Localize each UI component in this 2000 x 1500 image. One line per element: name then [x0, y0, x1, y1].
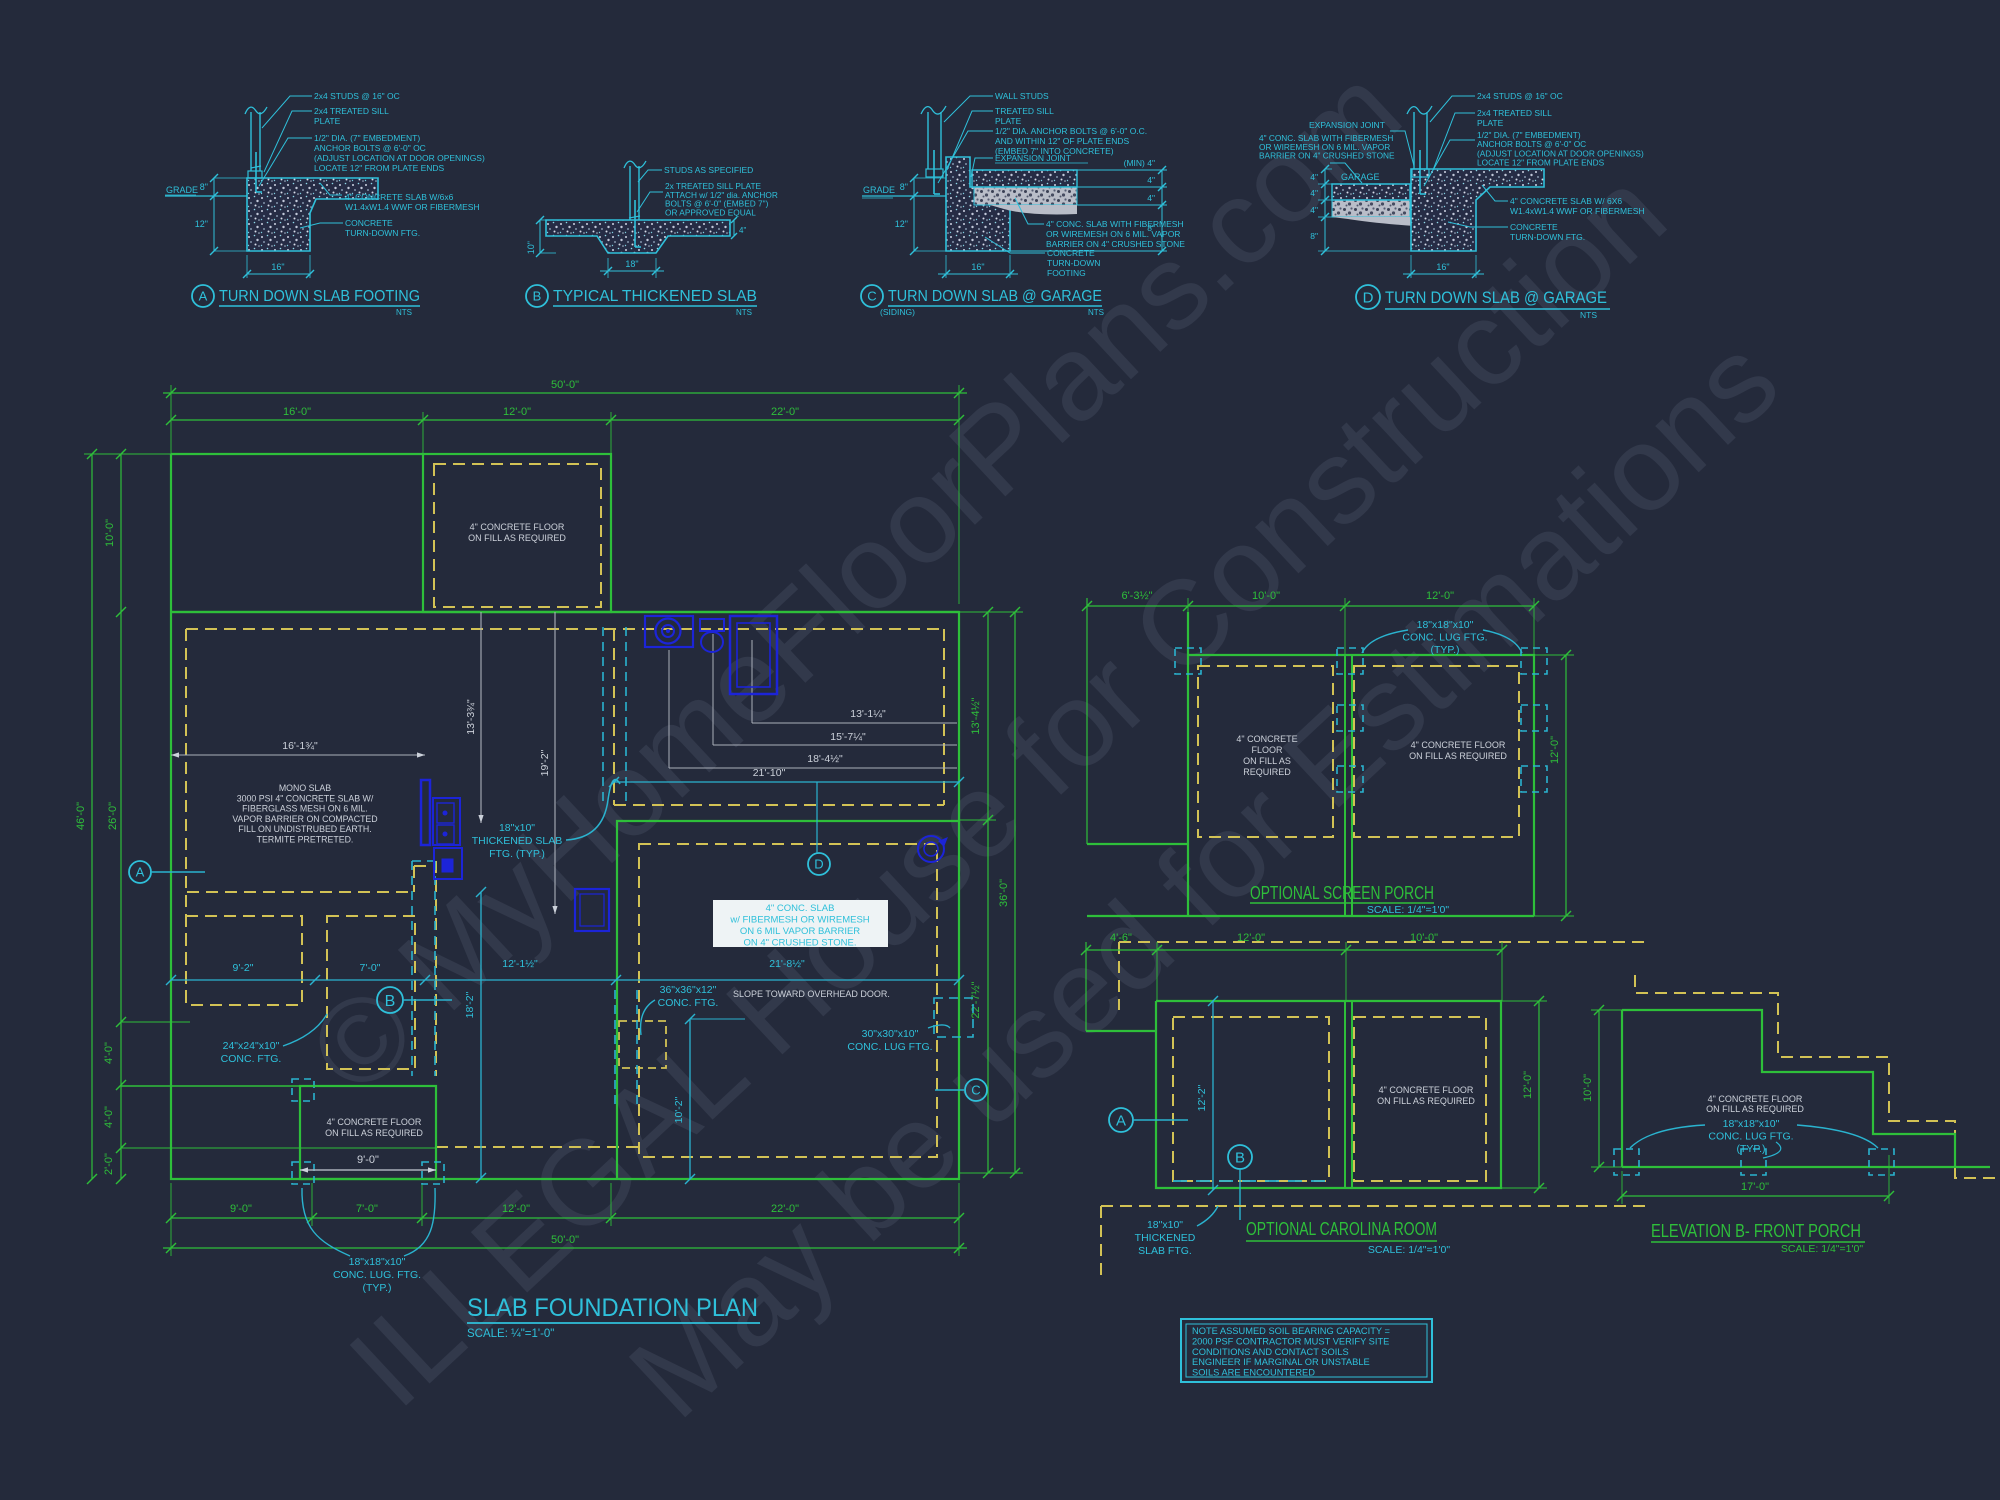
- svg-text:(TYP.): (TYP.): [1431, 644, 1460, 656]
- svg-text:9'-0": 9'-0": [357, 1154, 379, 1166]
- svg-text:8": 8": [200, 182, 208, 192]
- svg-text:W1.4xW1.4 WWF OR FIBERMESH: W1.4xW1.4 WWF OR FIBERMESH: [345, 202, 480, 212]
- svg-text:D: D: [1363, 289, 1374, 306]
- svg-text:WALL STUDS: WALL STUDS: [995, 91, 1049, 101]
- svg-text:4" CONC. SLAB: 4" CONC. SLAB: [766, 903, 835, 914]
- svg-text:16'-1¾": 16'-1¾": [282, 740, 318, 752]
- svg-text:22'-7½": 22'-7½": [970, 981, 982, 1018]
- svg-text:ON FILL AS REQUIRED: ON FILL AS REQUIRED: [1706, 1104, 1804, 1114]
- svg-text:SLAB FOUNDATION PLAN: SLAB FOUNDATION PLAN: [467, 1294, 758, 1322]
- svg-text:4" CONCRETE FLOOR: 4" CONCRETE FLOOR: [1708, 1094, 1803, 1104]
- svg-text:15'-7¼": 15'-7¼": [830, 731, 866, 743]
- svg-text:PLATE: PLATE: [1477, 118, 1504, 128]
- svg-text:12'-2": 12'-2": [1196, 1084, 1208, 1111]
- svg-text:12'-0": 12'-0": [1522, 1071, 1534, 1099]
- svg-text:REQUIRED: REQUIRED: [1243, 767, 1291, 777]
- svg-text:4": 4": [1147, 175, 1155, 185]
- svg-text:CONDITIONS AND CONTACT SOILS: CONDITIONS AND CONTACT SOILS: [1192, 1347, 1349, 1357]
- svg-text:VAPOR BARRIER ON COMPACTED: VAPOR BARRIER ON COMPACTED: [232, 814, 377, 824]
- svg-text:2x4 TREATED SILL: 2x4 TREATED SILL: [314, 106, 389, 116]
- svg-text:13'-1¼": 13'-1¼": [850, 708, 886, 720]
- svg-text:10": 10": [526, 241, 536, 254]
- svg-text:4": 4": [739, 226, 746, 235]
- svg-text:GRADE: GRADE: [863, 185, 895, 195]
- svg-text:MONO SLAB: MONO SLAB: [279, 783, 331, 793]
- svg-text:EXPANSION JOINT: EXPANSION JOINT: [1309, 120, 1385, 130]
- svg-text:16": 16": [1436, 262, 1449, 272]
- svg-text:2x4 STUDS @ 16" OC: 2x4 STUDS @ 16" OC: [314, 91, 400, 101]
- svg-text:18"x18"x10": 18"x18"x10": [349, 1256, 406, 1268]
- svg-text:12'-0": 12'-0": [1237, 932, 1265, 944]
- svg-text:18"x10": 18"x10": [499, 822, 535, 834]
- svg-text:9'-0": 9'-0": [230, 1203, 252, 1215]
- svg-text:ON FILL AS REQUIRED: ON FILL AS REQUIRED: [468, 533, 566, 543]
- svg-text:PLATE: PLATE: [995, 116, 1022, 126]
- svg-text:8": 8": [900, 182, 908, 192]
- svg-text:A: A: [199, 289, 208, 304]
- svg-text:(ADJUST LOCATION AT DOOR OPENI: (ADJUST LOCATION AT DOOR OPENINGS): [314, 153, 485, 163]
- svg-text:2'-0": 2'-0": [103, 1153, 115, 1175]
- svg-text:NTS: NTS: [1088, 308, 1104, 317]
- svg-text:18'-2": 18'-2": [464, 991, 476, 1018]
- svg-text:16'-0": 16'-0": [283, 406, 311, 418]
- svg-text:NTS: NTS: [396, 308, 412, 317]
- svg-text:9'-2": 9'-2": [233, 962, 254, 974]
- svg-text:B: B: [385, 993, 396, 1010]
- svg-text:12'-0": 12'-0": [1549, 736, 1561, 764]
- svg-text:36'-0": 36'-0": [998, 879, 1010, 907]
- svg-text:18"x10": 18"x10": [1147, 1219, 1183, 1231]
- svg-text:4" CONCRETE: 4" CONCRETE: [1236, 734, 1297, 744]
- svg-text:TURN DOWN SLAB @ GARAGE: TURN DOWN SLAB @ GARAGE: [1385, 288, 1607, 307]
- svg-text:21'-10": 21'-10": [753, 767, 786, 779]
- svg-text:12": 12": [895, 219, 908, 229]
- svg-text:4" CONCRETE SLAB W/6x6: 4" CONCRETE SLAB W/6x6: [345, 192, 454, 202]
- svg-text:36"x36"x12": 36"x36"x12": [660, 984, 717, 996]
- svg-text:ELEVATION B- FRONT PORCH: ELEVATION B- FRONT PORCH: [1651, 1221, 1861, 1241]
- svg-text:10'-0": 10'-0": [1410, 932, 1438, 944]
- svg-text:22'-0": 22'-0": [771, 406, 799, 418]
- svg-text:SCALE: 1/4"=1'0": SCALE: 1/4"=1'0": [1781, 1243, 1863, 1255]
- svg-text:w/ FIBERMESH OR WIREMESH: w/ FIBERMESH OR WIREMESH: [729, 915, 869, 926]
- svg-text:TERMITE PRETRETED.: TERMITE PRETRETED.: [257, 835, 354, 845]
- svg-text:10'-0": 10'-0": [1252, 590, 1280, 602]
- svg-text:50'-0": 50'-0": [551, 379, 579, 391]
- svg-text:A: A: [136, 865, 145, 880]
- svg-text:LOCATE 12" FROM PLATE ENDS: LOCATE 12" FROM PLATE ENDS: [1477, 158, 1605, 168]
- svg-text:W1.4xW1.4 WWF OR FIBERMESH: W1.4xW1.4 WWF OR FIBERMESH: [1510, 206, 1645, 216]
- svg-text:LOCATE 12" FROM PLATE ENDS: LOCATE 12" FROM PLATE ENDS: [314, 163, 445, 173]
- svg-text:4": 4": [1310, 172, 1318, 182]
- svg-text:19'-2": 19'-2": [539, 749, 551, 776]
- svg-text:4" CONCRETE FLOOR: 4" CONCRETE FLOOR: [1411, 740, 1506, 750]
- svg-text:NTS: NTS: [1580, 310, 1597, 320]
- svg-text:CONC. LUG FTG.: CONC. LUG FTG.: [847, 1041, 932, 1053]
- svg-text:TURN DOWN SLAB FOOTING: TURN DOWN SLAB FOOTING: [219, 288, 420, 305]
- svg-text:8": 8": [1310, 231, 1318, 241]
- svg-text:4": 4": [1310, 188, 1318, 198]
- svg-text:12'-0": 12'-0": [503, 406, 531, 418]
- svg-text:4": 4": [1147, 193, 1155, 203]
- svg-text:SCALE: 1/4"=1'0": SCALE: 1/4"=1'0": [1368, 1244, 1450, 1256]
- svg-text:13'-3¾": 13'-3¾": [465, 699, 477, 735]
- svg-text:CONC. FTG.: CONC. FTG.: [658, 997, 719, 1009]
- svg-text:TYPICAL THICKENED SLAB: TYPICAL THICKENED SLAB: [553, 288, 757, 305]
- svg-text:46'-0": 46'-0": [75, 802, 87, 830]
- svg-text:1/2" DIA. (7" EMBEDMENT): 1/2" DIA. (7" EMBEDMENT): [314, 133, 420, 143]
- svg-text:TURN-DOWN FTG.: TURN-DOWN FTG.: [345, 228, 420, 238]
- svg-text:16": 16": [971, 262, 984, 272]
- svg-text:ENGINEER IF MARGINAL OR UNSTAB: ENGINEER IF MARGINAL OR UNSTABLE: [1192, 1357, 1370, 1367]
- svg-text:12'-0": 12'-0": [1426, 590, 1454, 602]
- svg-text:4" CONC. SLAB WITH FIBERMESH: 4" CONC. SLAB WITH FIBERMESH: [1046, 219, 1184, 229]
- svg-text:4" CONCRETE SLAB W/ 6X6: 4" CONCRETE SLAB W/ 6X6: [1510, 196, 1622, 206]
- svg-text:A: A: [1116, 1112, 1126, 1129]
- svg-text:CONCRETE: CONCRETE: [1510, 222, 1558, 232]
- svg-text:TURN-DOWN: TURN-DOWN: [1047, 258, 1100, 268]
- svg-text:ON FILL AS REQUIRED: ON FILL AS REQUIRED: [1377, 1096, 1475, 1106]
- svg-text:NTS: NTS: [736, 308, 752, 317]
- svg-text:ON FILL AS: ON FILL AS: [1243, 756, 1291, 766]
- svg-text:4'-6": 4'-6": [1110, 932, 1132, 944]
- svg-text:CONC. LUG FTG.: CONC. LUG FTG.: [1402, 632, 1487, 644]
- svg-text:ON 4" CRUSHED STONE.: ON 4" CRUSHED STONE.: [744, 938, 857, 949]
- svg-text:ON FILL AS REQUIRED: ON FILL AS REQUIRED: [1409, 751, 1507, 761]
- svg-text:4'-0": 4'-0": [103, 1106, 115, 1128]
- svg-text:(TYP.): (TYP.): [363, 1282, 392, 1294]
- svg-text:2000 PSF CONTRACTOR MUST VERIF: 2000 PSF CONTRACTOR MUST VERIFY SITE: [1192, 1336, 1389, 1346]
- svg-text:30"x30"x10": 30"x30"x10": [862, 1028, 919, 1040]
- svg-text:13'-4½": 13'-4½": [970, 697, 982, 734]
- svg-text:12": 12": [195, 219, 208, 229]
- svg-text:C: C: [867, 289, 876, 304]
- svg-text:CONC. LUG FTG.: CONC. LUG FTG.: [1708, 1131, 1793, 1143]
- svg-text:CONCRETE: CONCRETE: [1047, 248, 1095, 258]
- svg-text:10'-0": 10'-0": [104, 519, 116, 547]
- svg-text:17'-0": 17'-0": [1741, 1181, 1769, 1193]
- svg-text:TURN DOWN SLAB @ GARAGE: TURN DOWN SLAB @ GARAGE: [888, 288, 1102, 305]
- svg-text:SLAB FTG.: SLAB FTG.: [1138, 1245, 1192, 1257]
- svg-text:TURN-DOWN FTG.: TURN-DOWN FTG.: [1510, 232, 1585, 242]
- svg-text:18"x18"x10": 18"x18"x10": [1417, 619, 1474, 631]
- svg-text:1/2" DIA. ANCHOR BOLTS @ 6'-0": 1/2" DIA. ANCHOR BOLTS @ 6'-0" O.C.: [995, 126, 1147, 136]
- svg-text:CONC. FTG.: CONC. FTG.: [221, 1053, 282, 1065]
- svg-text:16": 16": [271, 262, 284, 272]
- svg-text:4" CONCRETE FLOOR: 4" CONCRETE FLOOR: [1379, 1085, 1474, 1095]
- svg-text:B: B: [533, 289, 542, 304]
- svg-text:SOILS ARE ENCOUNTERED: SOILS ARE ENCOUNTERED: [1192, 1368, 1315, 1378]
- svg-text:OR WIREMESH ON 6 MIL. VAPOR: OR WIREMESH ON 6 MIL. VAPOR: [1046, 229, 1180, 239]
- svg-text:BARRIER ON 4" CRUSHED STONE: BARRIER ON 4" CRUSHED STONE: [1259, 151, 1395, 161]
- svg-text:12'-0": 12'-0": [502, 1203, 530, 1215]
- svg-text:3000 PSI 4" CONCRETE SLAB W/: 3000 PSI 4" CONCRETE SLAB W/: [237, 793, 374, 803]
- svg-text:4": 4": [1310, 205, 1318, 215]
- svg-text:OPTIONAL CAROLINA ROOM: OPTIONAL CAROLINA ROOM: [1246, 1219, 1437, 1239]
- svg-text:(MIN) 4": (MIN) 4": [1124, 158, 1155, 168]
- svg-text:10'-2": 10'-2": [673, 1096, 685, 1123]
- svg-text:18": 18": [625, 259, 638, 269]
- svg-text:D: D: [814, 857, 823, 872]
- svg-text:B: B: [1235, 1149, 1245, 1166]
- svg-text:THICKENED: THICKENED: [1135, 1232, 1196, 1244]
- svg-text:50'-0": 50'-0": [551, 1234, 579, 1246]
- svg-text:SCALE: 1/4"=1'0": SCALE: 1/4"=1'0": [1367, 904, 1449, 916]
- svg-text:NOTE ASSUMED SOIL BEARING CAPA: NOTE ASSUMED SOIL BEARING CAPACITY =: [1192, 1326, 1390, 1336]
- svg-text:ON 6 MIL VAPOR BARRIER: ON 6 MIL VAPOR BARRIER: [740, 926, 860, 937]
- svg-text:CONCRETE: CONCRETE: [345, 218, 393, 228]
- svg-text:21'-8½": 21'-8½": [769, 958, 805, 970]
- svg-text:SCALE: ¼"=1'-0": SCALE: ¼"=1'-0": [467, 1328, 554, 1340]
- svg-text:SLOPE TOWARD OVERHEAD DOOR.: SLOPE TOWARD OVERHEAD DOOR.: [733, 989, 890, 999]
- svg-text:(SIDING): (SIDING): [880, 307, 915, 317]
- svg-text:THICKENED SLAB: THICKENED SLAB: [472, 835, 562, 847]
- svg-text:OR APPROVED EQUAL: OR APPROVED EQUAL: [665, 207, 756, 217]
- svg-text:2x4 STUDS @ 16" OC: 2x4 STUDS @ 16" OC: [1477, 91, 1563, 101]
- svg-text:12'-1½": 12'-1½": [502, 958, 538, 970]
- svg-text:C: C: [971, 1083, 980, 1098]
- svg-text:EXPANSION JOINT: EXPANSION JOINT: [995, 153, 1071, 163]
- svg-text:10'-0": 10'-0": [1582, 1074, 1594, 1102]
- svg-text:4" CONCRETE FLOOR: 4" CONCRETE FLOOR: [327, 1117, 422, 1127]
- svg-text:18'-4½": 18'-4½": [807, 753, 843, 765]
- svg-text:FLOOR: FLOOR: [1251, 745, 1283, 755]
- svg-text:7'-0": 7'-0": [360, 962, 381, 974]
- svg-text:18"x18"x10": 18"x18"x10": [1723, 1118, 1780, 1130]
- svg-text:7'-0": 7'-0": [356, 1203, 378, 1215]
- svg-text:FTG. (TYP.): FTG. (TYP.): [489, 848, 545, 860]
- svg-text:4" CONCRETE FLOOR: 4" CONCRETE FLOOR: [470, 522, 565, 532]
- svg-text:22'-0": 22'-0": [771, 1203, 799, 1215]
- svg-text:6'-3½": 6'-3½": [1121, 590, 1152, 602]
- svg-text:ON FILL AS REQUIRED: ON FILL AS REQUIRED: [325, 1128, 423, 1138]
- svg-text:GRADE: GRADE: [166, 185, 198, 195]
- svg-text:(TYP.): (TYP.): [1737, 1143, 1766, 1155]
- svg-text:FOOTING: FOOTING: [1047, 268, 1086, 278]
- svg-text:STUDS AS SPECIFIED: STUDS AS SPECIFIED: [664, 165, 753, 175]
- svg-text:2x4 TREATED SILL: 2x4 TREATED SILL: [1477, 108, 1552, 118]
- svg-text:FILL ON UNDISTRUBED EARTH.: FILL ON UNDISTRUBED EARTH.: [238, 824, 371, 834]
- svg-text:FIBERGLASS MESH ON 6 MIL.: FIBERGLASS MESH ON 6 MIL.: [242, 804, 368, 814]
- svg-text:OPTIONAL SCREEN PORCH: OPTIONAL SCREEN PORCH: [1250, 882, 1434, 903]
- svg-text:24"x24"x10": 24"x24"x10": [223, 1040, 280, 1052]
- svg-text:26'-0": 26'-0": [107, 802, 119, 830]
- svg-text:PLATE: PLATE: [314, 116, 341, 126]
- svg-text:CONC. LUG. FTG.: CONC. LUG. FTG.: [333, 1269, 421, 1281]
- svg-text:4'-0": 4'-0": [103, 1042, 115, 1064]
- svg-text:TREATED SILL: TREATED SILL: [995, 106, 1054, 116]
- svg-text:ANCHOR BOLTS @ 6'-0" OC: ANCHOR BOLTS @ 6'-0" OC: [314, 143, 426, 153]
- svg-text:AND WITHIN 12" OF PLATE ENDS: AND WITHIN 12" OF PLATE ENDS: [995, 136, 1129, 146]
